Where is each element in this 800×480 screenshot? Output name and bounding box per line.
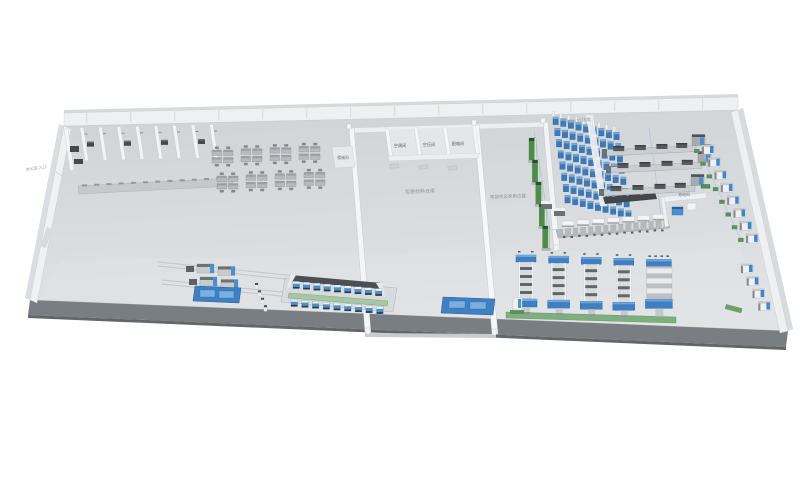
rack-post [613,127,615,132]
line-module-top [610,186,621,188]
machine-green-pad [700,162,706,166]
locker-dash [180,179,185,181]
wall-machine [747,277,759,286]
rack-cell-top [569,175,574,177]
station-top [638,216,650,221]
room-door-flap [390,164,399,168]
room-label-mark [214,131,217,132]
machine-green-pad [726,213,732,217]
chair [226,164,230,167]
feeder [186,266,194,272]
assembly-station [312,301,319,308]
assembly-station [334,303,341,310]
ladder-rail [616,265,618,302]
top-post-cap [596,253,599,255]
ladder-rail [551,263,553,300]
wall-machine [753,289,765,298]
station-top [355,287,362,289]
chair [244,145,248,148]
desk-top [253,156,263,158]
wall-column-tick [174,111,175,121]
desk-top [282,148,292,150]
line-head-top [549,256,569,258]
hall-left-label: 包装材料仓库 [405,187,435,195]
station-top [345,304,352,306]
station-top [323,302,330,304]
desk-top [212,150,222,152]
ladder-rung [520,267,533,270]
station-top [653,214,665,219]
station-base [334,309,341,311]
factory-floor-plan: 办公区入口 空调间 空压间 配电间 楼梯间 包装材料仓库 零部件及 [0,0,800,480]
assembly-station [324,284,331,291]
inline-machine-blue-end [210,264,214,273]
rack-cell-top [573,197,578,199]
line-end-machine-top [691,174,704,177]
station-foot [578,235,581,237]
locker-dash [94,184,99,186]
desk-top [270,148,280,150]
line-left-cap [602,149,607,156]
locker-dash [167,180,172,182]
top-post-cap [564,252,567,254]
chair [249,171,253,174]
lift-tower-edge [535,138,537,160]
line-head-top [646,259,671,261]
office-machine-top [161,140,168,142]
wall-column-tick [394,106,395,116]
locker-dash [119,182,124,184]
desk-top [299,154,309,156]
locker-dash [106,183,111,185]
chair [278,170,282,173]
machine-green-pad [707,174,713,178]
station-leg [623,223,625,230]
rack-cell-top [607,184,612,186]
rack-cell-top [583,168,588,170]
station-foot [593,234,596,236]
station-foot [631,232,634,234]
assembly-station [302,300,309,307]
top-post-cap [518,251,521,253]
inline-machine-blue-end [213,277,217,286]
line-head-top [614,258,634,260]
room-ac-label: 空调间 [394,142,407,149]
post-cap [258,290,261,292]
locker-dash [192,179,197,181]
wall-column-tick [614,101,615,111]
station-leg [616,224,618,231]
line-module-top [675,183,686,185]
station-base [365,293,372,295]
rack-cell-top [579,145,584,147]
ladder-rung [585,293,598,296]
station-base [303,288,310,290]
machine-blue-panel [749,265,753,272]
rack-cell-top [604,162,609,164]
pallet-slot [470,302,486,309]
rack-cell-top [573,154,578,156]
desk-top [229,176,239,178]
chair [302,160,306,163]
rack-cell-top [575,166,580,168]
machine-green-pad [732,225,738,229]
line-end-machine-panel [700,138,704,145]
top-post-cap [616,254,619,256]
assembly-station [355,287,362,294]
ladder-rung [617,294,630,297]
assembly-station [334,285,341,292]
room-power-label: 配电间 [452,140,465,147]
rack-cell-top [621,177,626,179]
desk-top [275,181,285,183]
top-post-cap [583,253,586,255]
line-module-top [639,162,650,164]
desk-top [246,175,256,177]
rack-cell-top [605,173,610,175]
desk-top [241,149,251,151]
ladder-rung [552,284,565,287]
desk-top [217,176,227,178]
rack-cell-top [556,139,561,141]
body-slat [647,288,672,293]
station-top [355,305,362,307]
desk-top [282,155,292,157]
rack-cell-top [553,117,558,119]
rack-cell-top [578,134,583,136]
assembly-station [365,288,372,295]
station-base [355,310,362,312]
top-post-cap [531,251,534,253]
small-machine-panel [518,299,521,308]
desk-top [246,182,256,184]
chair [244,163,248,166]
station-top [607,218,619,223]
station-leg [601,225,603,232]
top-post-cap [551,252,554,254]
chair [226,147,230,150]
station-top [562,221,574,226]
wall-machine [741,264,753,273]
post-cap [255,283,258,285]
locker-dash [155,181,160,183]
desk-top [287,181,297,183]
machine-blue-panel [742,210,746,217]
wall-column-tick [482,104,483,114]
rack-cell-top [567,164,572,166]
line-module-top [655,184,666,186]
desk-top [229,184,239,186]
station-base [345,309,352,311]
line-end-machine-top [692,135,705,138]
machine-green-pad [719,200,725,204]
ladder-rung [585,269,598,272]
station-base [366,311,373,313]
line-foot-shadow [621,315,628,317]
desk-top [311,146,321,148]
chair [278,188,282,191]
ladder-rail [519,262,521,299]
ladder-rung [617,278,630,281]
wall-column-tick [658,100,659,110]
station-base [291,305,298,307]
rack-post [606,125,608,130]
line-base-top [645,299,672,301]
line-module-top [632,185,643,187]
wall-column-tick [570,102,571,112]
line-module-top [656,144,667,146]
line-foot [655,308,663,316]
desk-top [212,158,222,160]
line-left-cap [606,166,611,173]
chair [231,190,235,193]
station-top [592,219,604,224]
station-top [334,303,341,305]
top-post-cap [654,255,657,257]
office-machine-top [124,141,131,143]
chair [273,162,277,165]
machine-green-pad [713,187,719,191]
station-base [314,289,321,291]
room-compressor-label: 空压间 [423,141,436,148]
line-module-top [613,146,624,148]
platform-slot [219,291,234,298]
station-top [366,306,373,308]
station-leg [662,220,664,227]
top-post-cap [648,255,651,257]
chair [220,173,224,176]
assembly-station [293,282,300,289]
tower-base [542,248,551,251]
station-top [302,300,309,302]
rack-cell-top [586,190,591,192]
station-base [375,294,382,296]
desk-top [224,158,234,160]
green-outfeed-pad [701,184,710,188]
assembly-station [303,282,310,289]
ladder-rail [597,264,599,301]
station-leg [654,220,656,227]
desk-top [258,182,268,184]
wall-column-tick [262,109,263,119]
dock-machine-top [541,201,552,204]
assembly-station [323,302,330,309]
chair [273,144,277,147]
machine-blue-panel [716,159,720,166]
station-base [334,291,341,293]
machine-green-pad [694,149,700,153]
line-foot-shadow [588,314,595,316]
locker-dash [82,184,87,186]
chair [307,186,311,189]
ladder-rung [520,291,533,294]
station-leg [571,227,573,234]
ladder-rung [552,292,565,295]
rack-cell-top [600,140,605,142]
rack-cell-top [584,179,589,181]
line-left-cap [599,189,604,196]
line-module-top [682,160,693,162]
lift-tower-edge [541,182,543,204]
rack-cell-top [614,132,619,134]
line-module-top [662,161,673,163]
line-base-top [580,301,602,303]
station-leg [631,223,633,230]
inline-machine-blue-end [234,280,238,289]
line-foot-shadow [523,312,530,314]
station-top [334,285,341,287]
ladder-rung [617,286,630,289]
room-label-mark [122,133,125,134]
desk-top [241,156,251,158]
chair [215,147,219,150]
ladder-rung [585,285,598,288]
feeder [189,279,197,285]
room-door-flap [448,166,457,170]
station-foot [601,234,604,236]
top-post-cap [629,254,632,256]
locker-dash [204,178,209,180]
wall-column-tick [350,107,351,117]
machine-blue-panel [766,303,770,310]
chair [307,169,311,172]
rack-cell-top [563,184,568,186]
line-base-top [548,300,570,302]
inline-machine-blue-end [231,267,235,276]
station-leg [578,226,580,233]
station-top [291,300,298,302]
machine-blue-panel [729,184,733,191]
station-foot [646,231,649,233]
station-leg [639,222,641,229]
line-end-machine-panel [699,177,703,184]
desk-top [299,146,309,148]
chair [255,163,259,166]
station-top [345,286,352,288]
assembly-station [366,306,373,313]
line-module-top [635,145,646,147]
post-cap [264,305,267,307]
chair [302,143,306,146]
ladder-rung [585,277,598,280]
station-top [365,288,372,290]
office-equipment [70,146,79,152]
station-foot [623,232,626,234]
stair-room-label: 楼梯间 [337,155,349,160]
line-module-top [676,143,687,145]
rack-post [560,113,562,118]
station-foot [639,231,642,233]
desk-top [253,149,263,151]
station-top [622,217,634,222]
rack-cell-top [555,128,560,130]
rack-cell-top [564,141,569,143]
station-top [312,301,319,303]
body-slat [647,278,672,283]
chair [313,160,317,163]
station-foot [608,233,611,235]
chair [260,189,264,192]
station-leg [608,224,610,231]
machine-blue-panel [755,278,759,285]
rack-cell-top [577,177,582,179]
station-foot [661,229,664,231]
chair [284,162,288,165]
station-leg [586,226,588,233]
office-machine-top [198,139,205,141]
office-equipment [74,159,83,164]
station-foot [571,236,574,238]
desk-top [258,175,268,177]
machine-blue-panel [710,146,714,153]
chair [318,186,322,189]
rack-cell-top [626,211,631,213]
room-label-mark [103,133,106,134]
rack-cell-top [578,188,583,190]
small-machine-base [510,310,524,314]
desk-top [316,172,326,174]
station-top [577,220,589,225]
station-top [377,307,384,309]
line-head-top [581,257,601,259]
chair [313,143,317,146]
station-top [303,282,310,284]
charge-room-label: 充电间 [678,192,690,197]
station-leg [647,222,649,229]
rack-cell-top [613,175,618,177]
station-foot [563,236,566,238]
assembly-station [314,283,321,290]
chair [260,171,264,174]
chair [231,173,235,176]
top-post-cap [660,255,663,257]
rack-cell-top [580,199,585,201]
station-base [312,307,319,309]
chair [249,189,253,192]
wall-column-tick [306,108,307,118]
chair [284,144,288,147]
machine-blue-panel [761,290,765,297]
rack-cell-top [571,186,576,188]
rack-cell-top [565,195,570,197]
chair [215,164,219,167]
rack-cell-top [616,143,621,145]
desk-top [287,174,297,176]
wall-column-tick [218,110,219,120]
desk-top [275,174,285,176]
rack-cell-top [581,156,586,158]
ladder-rail [630,265,632,302]
floor-plan-canvas: 办公区入口 空调间 空压间 配电间 楼梯间 包装材料仓库 零部件及 [0,0,800,480]
station-top [293,282,300,284]
rack-cell-top [588,201,593,203]
lift-tower-edge [548,226,550,248]
room-label-mark [140,132,143,133]
assembly-station [377,307,384,314]
machine-green-pad [738,238,744,242]
machine-blue-panel [748,222,752,229]
desk-top [270,155,280,157]
rack-cell-top [562,130,567,132]
room-label-mark [85,134,88,135]
rack-cell-top [572,143,577,145]
rack-post [552,112,554,117]
rack-cell-top [611,164,616,166]
chair [318,169,322,172]
ladder-rung [617,270,630,273]
desk-top [224,150,234,152]
rack-cell-top [606,130,611,132]
